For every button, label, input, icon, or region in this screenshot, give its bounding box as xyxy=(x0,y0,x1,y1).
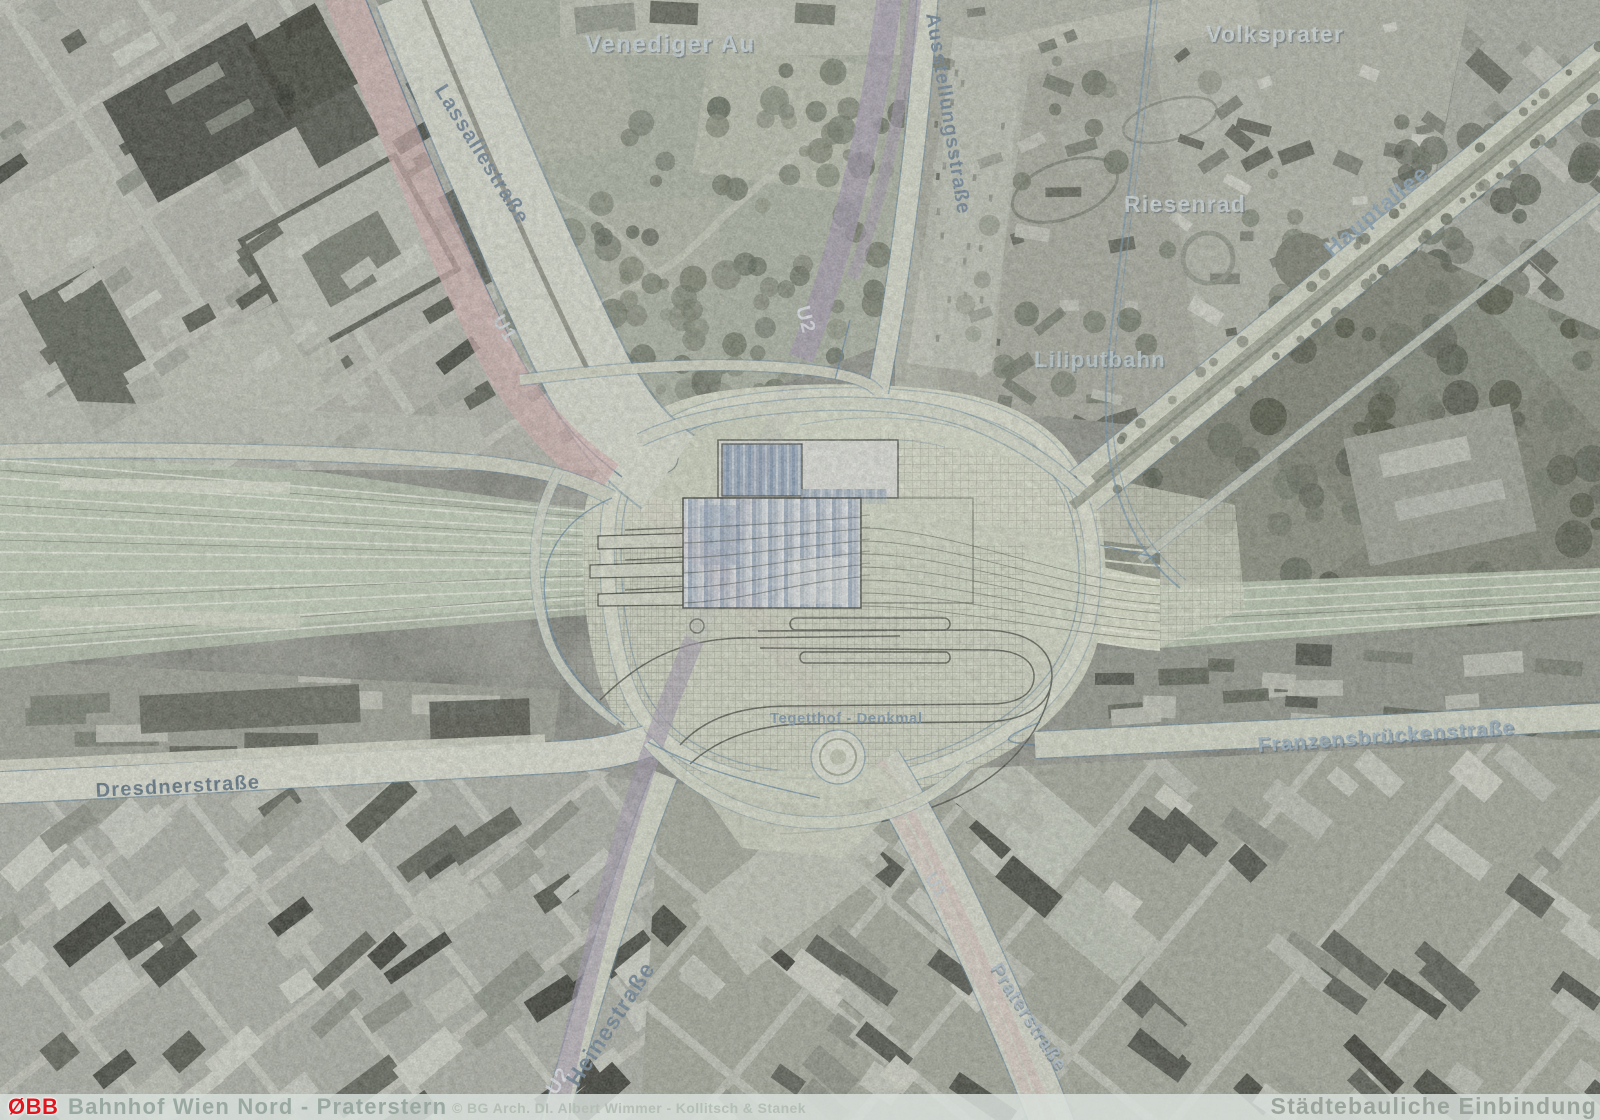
svg-text:ØBB: ØBB xyxy=(8,1094,58,1119)
svg-text:Bahnhof Wien Nord - Praterster: Bahnhof Wien Nord - Praterstern xyxy=(68,1094,447,1119)
svg-text:© BG Arch. DI. Albert Wimmer -: © BG Arch. DI. Albert Wimmer - Kollitsch… xyxy=(452,1100,806,1116)
svg-text:Städtebauliche Einbindung: Städtebauliche Einbindung xyxy=(1271,1093,1597,1119)
